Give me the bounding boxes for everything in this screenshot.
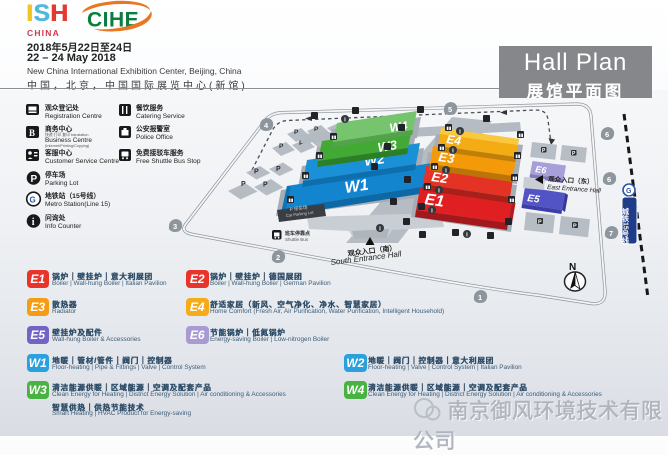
svg-text:Customer Service Centre: Customer Service Centre [45, 158, 119, 165]
svg-text:Metro Station(Line 15): Metro Station(Line 15) [45, 201, 110, 208]
svg-text:免费接驳车服务: 免费接驳车服务 [136, 148, 184, 157]
svg-text:Business Centre: Business Centre [45, 137, 92, 144]
svg-text:i: i [32, 217, 35, 228]
svg-text:商务中心: 商务中心 [45, 124, 72, 133]
svg-text:公安报警室: 公安报警室 [136, 124, 170, 133]
svg-text:Info Counter: Info Counter [45, 223, 82, 230]
svg-text:Catering Service: Catering Service [136, 113, 185, 120]
svg-text:Registration Centre: Registration Centre [45, 113, 102, 120]
svg-text:B: B [29, 128, 35, 138]
svg-text:Police Office: Police Office [136, 134, 173, 141]
svg-text:G: G [30, 196, 36, 205]
svg-text:餐饮服务: 餐饮服务 [135, 103, 163, 112]
svg-text:问询处: 问询处 [45, 213, 66, 222]
svg-text:地铁站（15号线）: 地铁站（15号线） [45, 191, 100, 200]
svg-text:观众登记处: 观众登记处 [45, 103, 79, 112]
svg-text:P: P [31, 174, 38, 185]
svg-text:Free Shuttle Bus Stop: Free Shuttle Bus Stop [136, 158, 201, 165]
svg-text:(Internet/Printing/Copying): (Internet/Printing/Copying) [45, 144, 90, 148]
svg-text:停车场: 停车场 [45, 170, 66, 179]
svg-text:Parking Lot: Parking Lot [45, 180, 79, 187]
svg-text:客服中心: 客服中心 [44, 148, 72, 157]
